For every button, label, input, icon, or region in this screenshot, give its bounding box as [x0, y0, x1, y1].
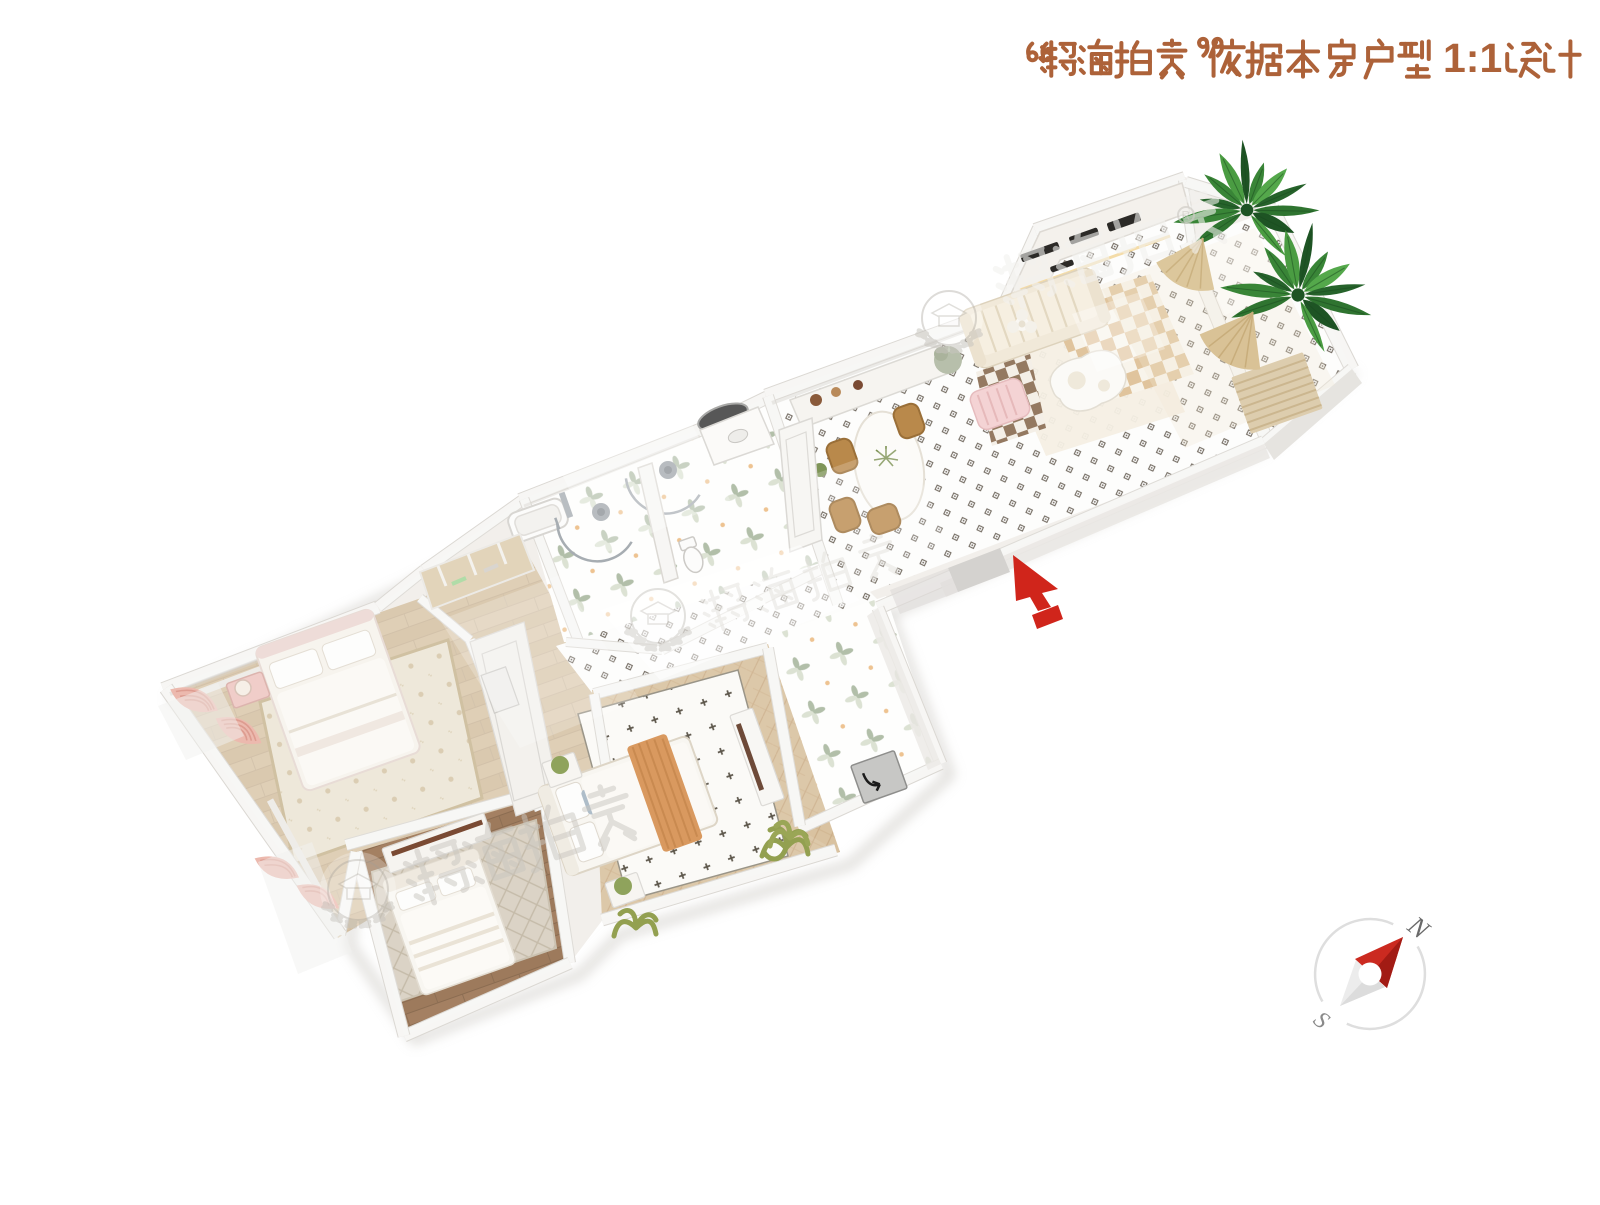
svg-text:N: N [1402, 909, 1437, 946]
svg-text:R: R [1182, 209, 1191, 223]
svg-text:S: S [1308, 1007, 1334, 1035]
svg-text:1:1: 1:1 [1443, 35, 1502, 81]
